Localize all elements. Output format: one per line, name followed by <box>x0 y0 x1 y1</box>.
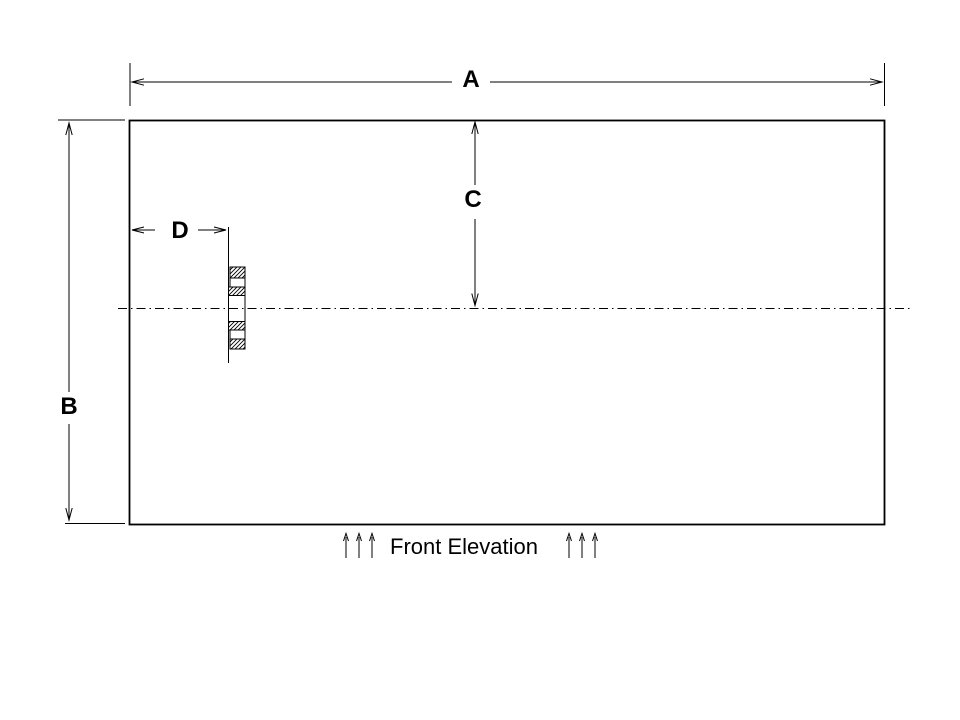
dimension-c <box>472 122 478 306</box>
flange-gap <box>230 330 245 339</box>
dim-label-b: B <box>60 395 77 419</box>
drawing-caption: Front Elevation <box>390 536 538 558</box>
dim-label-c: C <box>464 188 481 212</box>
caption-flank-arrows-right <box>567 534 598 559</box>
dim-label-a: A <box>462 68 479 92</box>
dimension-d <box>132 227 229 363</box>
dimension-a <box>130 63 885 106</box>
caption-flank-arrows-left <box>344 534 375 559</box>
flange-ring-hatched <box>230 339 245 349</box>
flange-ring-hatched <box>230 267 245 278</box>
dim-label-d: D <box>171 219 188 243</box>
pipe-wall-hatched <box>229 287 246 296</box>
dimension-b <box>58 120 125 524</box>
elevation-drawing <box>0 0 960 720</box>
pipe-wall-hatched <box>229 322 246 331</box>
slide-canvas: A B C D Front Elevation <box>0 0 960 720</box>
flange-gap <box>230 278 245 287</box>
